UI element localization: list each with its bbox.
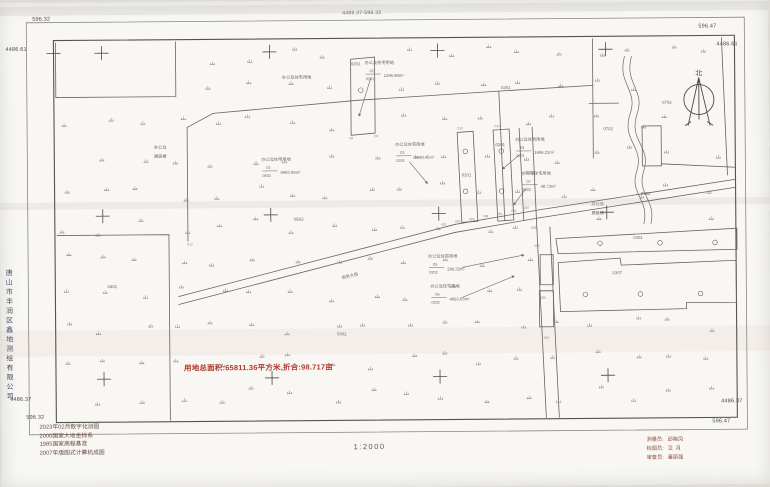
map-label: 0201 bbox=[495, 142, 505, 147]
grass-symbol bbox=[143, 295, 148, 298]
grass-symbol bbox=[173, 359, 178, 362]
parcel-area-value: 5463.06m² bbox=[280, 170, 301, 175]
land-use-label: 办公及住宅用地 bbox=[365, 59, 395, 66]
grass-symbol bbox=[521, 325, 526, 328]
credit-role: 测量员: bbox=[647, 436, 664, 445]
grass-symbol bbox=[485, 154, 490, 157]
map-label: 0307 bbox=[612, 270, 622, 275]
boundary-point-labels-layer: 081082083084085086087088089D8D9D10D11D12… bbox=[186, 124, 549, 343]
grass-symbol bbox=[207, 164, 212, 167]
survey-note-line: 2023年02月数字化测图 bbox=[39, 423, 104, 432]
grass-symbol bbox=[555, 160, 560, 163]
grass-symbol bbox=[400, 225, 405, 228]
grass-symbol bbox=[64, 289, 69, 292]
grass-symbol bbox=[397, 187, 402, 190]
grass-symbol bbox=[216, 121, 221, 124]
grass-symbol bbox=[250, 258, 255, 261]
grass-symbol bbox=[109, 118, 114, 121]
grass-symbol bbox=[337, 260, 342, 263]
grass-symbol bbox=[716, 155, 721, 158]
boundary-point-label: D10 bbox=[457, 126, 463, 130]
grass-symbol bbox=[440, 181, 445, 184]
grass-symbol bbox=[484, 400, 489, 403]
map-label: 居民楼 bbox=[591, 209, 604, 216]
grass-symbol bbox=[435, 81, 440, 84]
parcel-point-number: 02 bbox=[370, 69, 374, 73]
map-sheet-paper: 0201020102010201020205020401030203010307… bbox=[0, 0, 770, 487]
grass-symbol bbox=[412, 354, 417, 357]
grass-symbol bbox=[556, 399, 561, 402]
grass-symbol bbox=[441, 155, 446, 158]
grass-symbol bbox=[100, 255, 105, 258]
map-label: 0401 bbox=[108, 284, 118, 289]
grass-symbol bbox=[148, 324, 153, 327]
corner-coord-top-left-y: 4486.61 bbox=[5, 47, 26, 53]
grid-cross bbox=[433, 370, 447, 384]
grass-symbol bbox=[96, 332, 101, 335]
grid-cross bbox=[265, 371, 279, 385]
grass-symbol bbox=[709, 386, 714, 389]
grass-symbol bbox=[556, 52, 561, 55]
boundary-point-label: D8 bbox=[349, 136, 353, 140]
grass-symbol bbox=[66, 253, 71, 256]
grass-symbol bbox=[247, 59, 252, 62]
grass-symbol bbox=[65, 190, 70, 193]
land-use-label: 办公及住宅用地 bbox=[521, 170, 551, 177]
grass-symbol bbox=[360, 323, 365, 326]
map-label: 商务大街 bbox=[341, 270, 359, 281]
grass-symbol bbox=[372, 228, 377, 231]
land-use-label: 办公及住宅用地 bbox=[515, 136, 545, 143]
grass-symbol bbox=[641, 125, 646, 128]
stream-line bbox=[623, 56, 645, 224]
map-label: 办公及 bbox=[591, 200, 604, 207]
corner-coord-bottom-right-x: 596.47 bbox=[712, 418, 730, 424]
grass-symbol bbox=[246, 81, 251, 84]
boundary-point-label: 086 bbox=[511, 209, 517, 213]
grass-symbol bbox=[253, 217, 258, 220]
map-label: 0702 bbox=[641, 191, 651, 196]
vegetation-symbols-layer bbox=[58, 43, 723, 406]
grass-symbol bbox=[600, 53, 605, 56]
grass-symbol bbox=[103, 290, 108, 293]
grass-symbol bbox=[664, 317, 669, 320]
leader-line bbox=[462, 276, 514, 297]
grass-symbol bbox=[132, 187, 137, 190]
boundary-top-parcel-east bbox=[499, 91, 505, 221]
grid-cross bbox=[264, 208, 278, 222]
land-use-label: 办公及住宅用地 bbox=[395, 141, 425, 148]
grass-symbol bbox=[182, 398, 187, 401]
grass-symbol bbox=[319, 55, 324, 58]
surveyor-company-name: 唐山市丰润区鑫地测绘有限公司 bbox=[3, 269, 14, 402]
map-frame bbox=[26, 17, 747, 435]
grass-symbol bbox=[370, 187, 375, 190]
grass-symbol bbox=[407, 47, 412, 50]
land-use-label: 办公及住宅用地 bbox=[430, 282, 460, 289]
map-label: 0302 bbox=[337, 331, 347, 336]
boundary-top-parcel bbox=[187, 91, 500, 241]
grass-symbol bbox=[442, 117, 447, 120]
boundary-point-label: 082 bbox=[455, 219, 461, 223]
grass-symbol bbox=[209, 263, 214, 266]
grass-symbol bbox=[442, 351, 447, 354]
parcel-area-value: 1696.22m² bbox=[534, 150, 555, 155]
grass-symbol bbox=[143, 159, 148, 162]
boundary-point-label: 089 bbox=[534, 244, 540, 248]
boundary-north bbox=[499, 85, 593, 91]
grass-symbol bbox=[587, 323, 592, 326]
grass-symbol bbox=[637, 355, 642, 358]
grass-symbol bbox=[329, 154, 334, 157]
grass-symbol bbox=[139, 361, 144, 364]
road-edge bbox=[178, 179, 737, 296]
grass-symbol bbox=[179, 285, 184, 288]
grass-symbol bbox=[404, 392, 409, 395]
boundary-point-label: 088 bbox=[531, 226, 537, 230]
survey-notes: 2023年02月数字化测图2000国家大地坐标系1985国家高程基准2007年版… bbox=[39, 423, 104, 458]
boundary-left-parcel bbox=[57, 235, 170, 422]
total-area-annotation: 用地总面积:65811.36平方米,折合:98.717亩 bbox=[184, 361, 333, 373]
grass-symbol bbox=[175, 324, 180, 327]
grass-symbol bbox=[513, 225, 518, 228]
grass-symbol bbox=[104, 188, 109, 191]
credits-block: 测量员:邱晓凤检图员:卫 月审查员:董丽强 bbox=[647, 436, 684, 463]
parcel-strip-3 bbox=[519, 127, 537, 229]
grid-cross bbox=[430, 44, 444, 58]
grass-symbol bbox=[709, 216, 714, 219]
circle-symbol bbox=[698, 291, 703, 296]
grass-symbol bbox=[558, 84, 563, 87]
parcel-area-value: 1296.98m² bbox=[384, 73, 405, 78]
grass-symbol bbox=[599, 385, 604, 388]
grass-symbol bbox=[488, 229, 493, 232]
grass-symbol bbox=[402, 297, 407, 300]
grass-symbol bbox=[292, 47, 297, 50]
grass-symbol bbox=[624, 48, 629, 51]
grass-symbol bbox=[95, 402, 100, 405]
grass-symbol bbox=[95, 233, 100, 236]
circle-symbol bbox=[713, 240, 718, 245]
grass-symbol bbox=[371, 388, 376, 391]
grass-symbol bbox=[594, 114, 599, 117]
grass-symbol bbox=[631, 398, 636, 401]
grass-symbol bbox=[205, 86, 210, 89]
parcel-boundaries bbox=[55, 37, 738, 421]
grass-symbol bbox=[636, 316, 641, 319]
credit-row: 审查员:董丽强 bbox=[647, 454, 684, 463]
credit-role: 审查员: bbox=[647, 454, 664, 463]
grass-symbol bbox=[100, 359, 105, 362]
grass-symbol bbox=[399, 87, 404, 90]
grass-symbol bbox=[322, 196, 327, 199]
circle-symbol bbox=[463, 149, 468, 154]
grass-symbol bbox=[327, 85, 332, 88]
grass-symbol bbox=[287, 391, 292, 394]
grass-symbol bbox=[408, 323, 413, 326]
grass-symbol bbox=[249, 386, 254, 389]
grass-symbol bbox=[375, 156, 380, 159]
boundary-point-label: 091 bbox=[544, 336, 550, 340]
parcel-number: 0202 bbox=[431, 301, 439, 305]
boundary-point-label: 087 bbox=[524, 206, 530, 210]
grass-symbol bbox=[709, 328, 714, 331]
parcel-area-value: 4863.63m² bbox=[449, 296, 470, 301]
circle-symbol bbox=[598, 241, 603, 246]
credit-role: 检图员: bbox=[647, 445, 664, 454]
circle-symbol bbox=[638, 292, 643, 297]
grass-symbol bbox=[288, 81, 293, 84]
map-label: 0702 bbox=[603, 126, 613, 131]
grass-symbol bbox=[138, 218, 143, 221]
boundary-topleft-notch bbox=[55, 42, 175, 98]
map-label: 0702 bbox=[662, 100, 672, 105]
grass-symbol bbox=[476, 190, 481, 193]
grass-symbol bbox=[140, 121, 145, 124]
grass-symbol bbox=[65, 361, 70, 364]
circle-symbol bbox=[583, 292, 588, 297]
grass-symbol bbox=[442, 320, 447, 323]
scanned-cadastral-map: 0201020102010201020205020401030203010307… bbox=[0, 0, 770, 487]
leader-line bbox=[359, 78, 371, 116]
grass-symbol bbox=[246, 290, 251, 293]
grass-symbol bbox=[249, 323, 254, 326]
leader-line bbox=[462, 255, 524, 267]
grass-symbol bbox=[214, 196, 219, 199]
grass-symbol bbox=[662, 115, 667, 118]
north-arrow-icon bbox=[684, 77, 714, 125]
parcel-number: 0201 bbox=[516, 154, 524, 158]
grass-symbol bbox=[217, 224, 222, 227]
grass-symbol bbox=[220, 400, 225, 403]
boundary-point-label: 085 bbox=[497, 212, 503, 216]
land-use-label: 办公及住宅用地 bbox=[261, 156, 291, 163]
grass-symbol bbox=[513, 356, 518, 359]
grass-symbol bbox=[259, 354, 264, 357]
grass-symbol bbox=[329, 128, 334, 131]
boundary-point-label: 090 bbox=[541, 296, 547, 300]
grass-symbol bbox=[514, 50, 519, 53]
grass-symbol bbox=[666, 388, 671, 391]
land-use-label: 办公及住宅用地 bbox=[428, 252, 458, 259]
credit-name: 邱晓凤 bbox=[668, 436, 684, 445]
parcel-point-number: 03 bbox=[400, 151, 404, 155]
area-annotation: 办公及住宅用地0602024863.63m² bbox=[430, 276, 514, 305]
corner-coord-bottom-left-x: 596.32 bbox=[26, 415, 44, 421]
area-annotation: 办公及住宅用地0302012448.45m² bbox=[395, 141, 435, 184]
grass-symbol bbox=[99, 158, 104, 161]
grid-cross bbox=[601, 368, 615, 382]
grass-symbol bbox=[336, 400, 341, 403]
grass-symbol bbox=[223, 288, 228, 291]
grass-symbol bbox=[517, 287, 522, 290]
grid-cross bbox=[262, 45, 276, 59]
corner-coord-bottom-right-y: 4486.37 bbox=[721, 398, 742, 404]
grass-symbol bbox=[367, 256, 372, 259]
building-topright bbox=[642, 126, 661, 166]
north-arrow-needle bbox=[685, 77, 713, 125]
parcel-area-value: 48.73m² bbox=[541, 184, 557, 189]
grass-symbol bbox=[627, 145, 632, 148]
grass-symbol bbox=[703, 356, 708, 359]
grass-symbol bbox=[487, 289, 492, 292]
parcel-number: 0502 bbox=[262, 174, 270, 178]
map-label: 0201 bbox=[351, 61, 361, 66]
stream bbox=[623, 56, 652, 224]
grass-symbol bbox=[438, 396, 443, 399]
boundary-point-label: 081 bbox=[441, 223, 447, 227]
grid-cross bbox=[97, 372, 111, 386]
grass-symbol bbox=[288, 231, 293, 234]
grass-symbol bbox=[595, 78, 600, 81]
parcel-point-number: 01 bbox=[266, 166, 270, 170]
grass-symbol bbox=[596, 217, 601, 220]
grass-symbol bbox=[290, 120, 295, 123]
grass-symbol bbox=[486, 45, 491, 48]
grass-symbol bbox=[476, 362, 481, 365]
grass-symbol bbox=[284, 332, 289, 335]
parcel-point-number: 07 bbox=[527, 180, 531, 184]
map-label: 居民楼 bbox=[154, 153, 167, 160]
leader-line bbox=[409, 162, 427, 184]
grass-symbol bbox=[210, 62, 215, 65]
grass-symbol bbox=[401, 113, 406, 116]
grass-symbol bbox=[131, 258, 136, 261]
map-canvas: 0201020102010201020205020401030203010307… bbox=[0, 0, 770, 487]
parcel-point-number: 04 bbox=[520, 146, 524, 150]
grass-symbol bbox=[664, 150, 669, 153]
grass-symbol bbox=[596, 349, 601, 352]
grass-symbol bbox=[61, 124, 66, 127]
credit-row: 检图员:卫 月 bbox=[647, 445, 684, 454]
grass-symbol bbox=[368, 367, 373, 370]
map-label: 办公及住宅用地 bbox=[282, 74, 312, 81]
corner-coord-top-right-x: 596.47 bbox=[698, 23, 716, 29]
circle-symbol bbox=[358, 88, 363, 93]
grass-symbol bbox=[590, 188, 595, 191]
grass-symbol bbox=[288, 290, 293, 293]
parcel-number: 0202 bbox=[429, 271, 437, 275]
grass-symbol bbox=[550, 355, 555, 358]
grid-cross bbox=[96, 209, 110, 223]
boundary-point-label: 083 bbox=[469, 217, 475, 221]
area-annotation: 办公及住宅用地0105025463.06m² bbox=[261, 156, 301, 178]
grass-symbol bbox=[526, 122, 531, 125]
survey-note-line: 2007年版图式计算机成图 bbox=[40, 449, 105, 458]
well-symbols-layer bbox=[358, 85, 717, 298]
map-label: 办公及 bbox=[154, 144, 167, 151]
grass-symbol bbox=[185, 230, 190, 233]
grass-symbol bbox=[181, 117, 186, 120]
parcel-point-number: 06 bbox=[435, 293, 439, 297]
grid-crosses-layer bbox=[94, 42, 615, 386]
grass-symbol bbox=[562, 194, 567, 197]
grass-symbol bbox=[140, 400, 145, 403]
grass-symbol bbox=[401, 261, 406, 264]
grass-symbol bbox=[290, 194, 295, 197]
grass-symbol bbox=[481, 83, 486, 86]
grass-symbol bbox=[435, 226, 440, 229]
sheet-number: 4486.37-596.32 bbox=[342, 10, 381, 16]
north-label: 北 bbox=[695, 70, 702, 78]
grass-symbol bbox=[527, 396, 532, 399]
grass-symbol bbox=[67, 322, 72, 325]
map-label: 0301 bbox=[633, 235, 643, 240]
credit-name: 董丽强 bbox=[668, 454, 684, 463]
credit-name: 卫 月 bbox=[668, 445, 681, 454]
grass-symbol bbox=[594, 150, 599, 153]
grass-symbol bbox=[182, 261, 187, 264]
circle-symbol bbox=[463, 189, 468, 194]
boundary-point-label: D11 bbox=[494, 124, 500, 128]
area-annotation: 办公及住宅用地050202296.32m² bbox=[428, 252, 524, 275]
grass-symbol bbox=[285, 353, 290, 356]
grass-symbol bbox=[672, 45, 677, 48]
grass-symbol bbox=[295, 260, 300, 263]
grass-symbol bbox=[245, 114, 250, 117]
grass-symbol bbox=[173, 161, 178, 164]
grass-symbol bbox=[449, 54, 454, 57]
grass-symbol bbox=[337, 324, 342, 327]
grass-symbol bbox=[332, 223, 337, 226]
map-label: 0502 bbox=[294, 217, 304, 222]
map-label: 0201 bbox=[462, 172, 472, 177]
parcel-area-value: 2448.45m² bbox=[414, 155, 435, 160]
parcel-number: 0201 bbox=[396, 159, 404, 163]
building-0307 bbox=[558, 257, 736, 311]
grass-symbol bbox=[207, 321, 212, 324]
corner-coord-top-right-y: 4486.61 bbox=[716, 41, 737, 47]
area-annotation: 办公及住宅用地0202011296.98m² bbox=[359, 59, 405, 116]
boundary-point-label: D12 bbox=[187, 243, 193, 247]
grass-symbol bbox=[528, 258, 533, 261]
grass-symbol bbox=[663, 183, 668, 186]
grass-symbol bbox=[515, 189, 520, 192]
grass-symbol bbox=[475, 320, 480, 323]
credit-row: 测量员:邱晓凤 bbox=[647, 436, 684, 445]
grass-symbol bbox=[549, 114, 554, 117]
parcel-point-number: 05 bbox=[433, 263, 437, 267]
grass-symbol bbox=[515, 80, 520, 83]
grass-symbol bbox=[253, 161, 258, 164]
boundary-point-label: 084 bbox=[483, 214, 489, 218]
grid-cross bbox=[94, 46, 108, 60]
grass-symbol bbox=[478, 116, 483, 119]
grass-symbol bbox=[59, 230, 64, 233]
building-0301 bbox=[556, 228, 737, 253]
grass-symbol bbox=[375, 295, 380, 298]
corner-coord-top-left-x: 596.32 bbox=[32, 17, 50, 23]
grass-symbol bbox=[701, 49, 706, 52]
map-label: 0201 bbox=[501, 85, 511, 90]
grid-cross bbox=[432, 207, 446, 221]
grass-symbol bbox=[329, 299, 334, 302]
boundary-point-label: D9 bbox=[374, 134, 378, 138]
grid-cross bbox=[598, 42, 612, 56]
grass-symbol bbox=[706, 190, 711, 193]
grass-symbol bbox=[666, 354, 671, 357]
boundary-topright-2 bbox=[660, 37, 735, 176]
circle-symbol bbox=[658, 241, 663, 246]
grass-symbol bbox=[259, 184, 264, 187]
area-annotations-layer: 办公及住宅用地0105025463.06m²办公及住宅用地0202011296.… bbox=[261, 58, 558, 306]
map-scale: 1:2000 bbox=[354, 442, 386, 451]
